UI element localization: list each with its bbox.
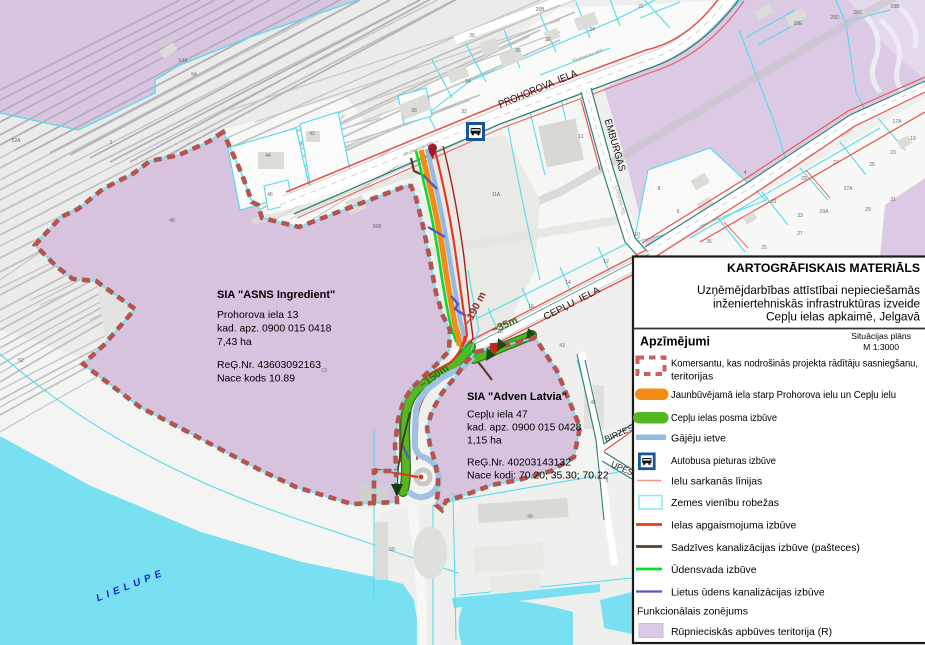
svg-text:32: 32 [461, 109, 467, 115]
svg-text:Cepļu iela 47: Cepļu iela 47 [467, 410, 528, 421]
svg-text:44: 44 [265, 153, 271, 159]
svg-text:12: 12 [603, 259, 609, 265]
svg-text:6: 6 [677, 209, 680, 215]
svg-text:8: 8 [658, 186, 661, 192]
svg-text:27: 27 [833, 160, 839, 166]
svg-text:29: 29 [801, 176, 807, 182]
svg-text:29: 29 [865, 207, 871, 213]
svg-text:36B: 36B [373, 224, 383, 230]
svg-text:27A: 27A [844, 186, 854, 192]
svg-text:Sadzīves kanalizācijas izbūve: Sadzīves kanalizācijas izbūve (pašteces) [671, 543, 860, 554]
svg-text:25: 25 [869, 162, 875, 168]
svg-text:kad. apz. 0900 015 0418: kad. apz. 0900 015 0418 [217, 324, 332, 335]
svg-text:kad. apz. 0900 015 0428: kad. apz. 0900 015 0428 [467, 423, 582, 434]
svg-text:inženiertehniskās infrastruktū: inženiertehniskās infrastruktūras izveid… [713, 297, 920, 311]
svg-text:10: 10 [634, 232, 640, 238]
svg-text:28D: 28D [830, 15, 840, 21]
svg-text:26B: 26B [536, 7, 546, 13]
svg-text:Ūdensvada izbūve: Ūdensvada izbūve [671, 564, 757, 576]
svg-text:28: 28 [545, 37, 551, 43]
svg-text:11: 11 [578, 134, 583, 140]
svg-text:45: 45 [590, 400, 596, 406]
svg-text:16: 16 [528, 304, 534, 310]
svg-text:Cepļu ielas posma izbūve: Cepļu ielas posma izbūve [671, 413, 777, 424]
svg-text:Cepļu ielas apkaimē, Jelgavā: Cepļu ielas apkaimē, Jelgavā [766, 310, 920, 324]
svg-text:1: 1 [110, 140, 113, 146]
svg-text:46: 46 [267, 192, 273, 198]
svg-text:Nace kods 10.89: Nace kods 10.89 [217, 374, 295, 385]
svg-text:Ielu sarkanās līnijas: Ielu sarkanās līnijas [671, 477, 762, 488]
svg-text:SIA "Adven Latvia": SIA "Adven Latvia" [467, 391, 567, 403]
svg-text:31: 31 [890, 197, 896, 203]
svg-text:28E: 28E [794, 21, 804, 27]
svg-text:22: 22 [638, 4, 644, 10]
svg-text:43: 43 [559, 343, 565, 349]
svg-text:38: 38 [411, 108, 417, 114]
svg-text:28B: 28B [891, 4, 901, 10]
svg-text:23: 23 [890, 150, 896, 156]
svg-text:7,43 ha: 7,43 ha [217, 337, 252, 348]
svg-text:5: 5 [606, 478, 609, 484]
svg-text:Gājēju ietve: Gājēju ietve [671, 434, 726, 445]
svg-text:4: 4 [744, 170, 747, 176]
svg-text:Nace kodi: 70.20; 35.30; 70.22: Nace kodi: 70.20; 35.30; 70.22 [467, 471, 609, 482]
svg-text:Komersantu, kas nodrošinās pro: Komersantu, kas nodrošinās projekta rādī… [671, 359, 918, 370]
svg-text:54A: 54A [179, 58, 189, 64]
svg-text:teritorijas: teritorijas [671, 372, 713, 383]
svg-text:19: 19 [910, 136, 916, 142]
svg-text:52: 52 [18, 358, 24, 364]
svg-text:Autobusa pieturas izbūve: Autobusa pieturas izbūve [671, 456, 776, 467]
svg-text:35: 35 [706, 239, 712, 245]
svg-text:ReĢ.Nr. 43603092163: ReĢ.Nr. 43603092163 [217, 360, 321, 371]
svg-text:52A: 52A [12, 138, 22, 144]
svg-text:28C: 28C [853, 10, 863, 16]
svg-text:SIA "ASNS Ingredient": SIA "ASNS Ingredient" [217, 289, 335, 301]
svg-text:Uzņēmējdarbības attīstībai nep: Uzņēmējdarbības attīstībai nepieciešamās [697, 283, 920, 297]
svg-text:Situācijas plāns: Situācijas plāns [851, 331, 911, 341]
svg-text:50: 50 [389, 547, 395, 553]
svg-text:Funkcionālais zonējums: Funkcionālais zonējums [637, 607, 748, 618]
svg-text:Rūpnieciskās apbūves teritorij: Rūpnieciskās apbūves teritorija (R) [671, 627, 832, 638]
svg-text:Prohorova iela 13: Prohorova iela 13 [217, 310, 299, 321]
svg-text:17A: 17A [893, 119, 903, 125]
svg-text:18: 18 [497, 329, 503, 335]
svg-text:ReĢ.Nr. 40203143132: ReĢ.Nr. 40203143132 [467, 458, 571, 469]
svg-text:30: 30 [469, 33, 475, 39]
svg-text:M 1:3000: M 1:3000 [863, 342, 899, 352]
svg-text:31: 31 [771, 199, 777, 205]
svg-text:Lietus ūdens kanalizācijas izb: Lietus ūdens kanalizācijas izbūve [671, 588, 825, 599]
svg-text:54: 54 [191, 72, 197, 78]
svg-text:Ielas apgaismojuma izbūve: Ielas apgaismojuma izbūve [671, 521, 797, 532]
svg-text:33: 33 [797, 213, 803, 219]
svg-text:1,15 ha: 1,15 ha [467, 436, 502, 447]
svg-text:34: 34 [465, 79, 471, 85]
svg-text:KARTOGRĀFISKAIS MATERIĀLS: KARTOGRĀFISKAIS MATERIĀLS [727, 261, 920, 275]
svg-text:48: 48 [169, 218, 175, 224]
svg-text:13: 13 [321, 368, 327, 374]
svg-text:14: 14 [565, 280, 571, 286]
svg-text:11A: 11A [492, 192, 501, 198]
svg-text:24: 24 [589, 27, 595, 33]
svg-text:29A: 29A [820, 209, 830, 215]
svg-text:Apzīmējumi: Apzīmējumi [640, 335, 710, 349]
svg-text:27: 27 [797, 231, 803, 237]
svg-text:49: 49 [527, 514, 533, 520]
svg-text:25: 25 [761, 245, 767, 251]
svg-text:Zemes vienību robežas: Zemes vienību robežas [671, 498, 779, 509]
svg-text:26: 26 [515, 48, 521, 54]
svg-text:Jaunbūvējamā iela starp Prohor: Jaunbūvējamā iela starp Prohorova ielu u… [671, 390, 896, 401]
svg-text:42: 42 [309, 131, 315, 137]
